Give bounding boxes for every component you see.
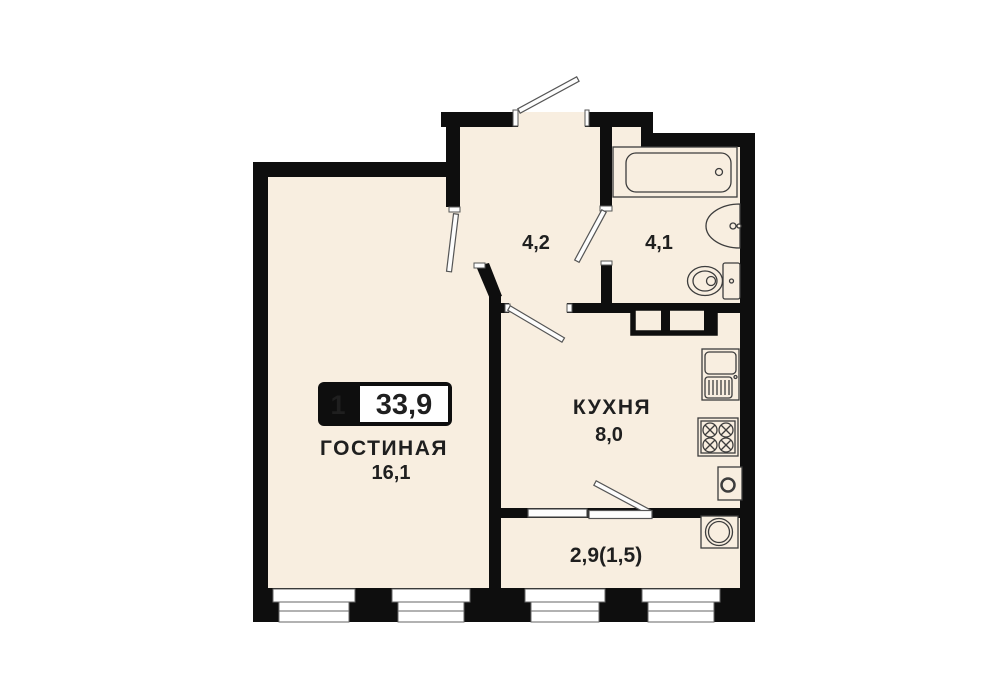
entrance-door-leaf	[518, 77, 579, 113]
kitchen-sink-faucet	[734, 376, 737, 379]
kitchen-name: КУХНЯ	[573, 396, 651, 419]
living-room-name: ГОСТИНАЯ	[320, 437, 448, 460]
bathtub	[613, 147, 737, 197]
window-living-1	[273, 589, 355, 622]
wall-hall-left	[446, 112, 460, 207]
bathtub-drain	[716, 169, 723, 176]
hallway-area: 4,2	[522, 232, 550, 254]
balcony-sliding-panel-right	[589, 511, 652, 519]
vent-shaft-divider-1	[661, 306, 670, 335]
wall-right	[740, 133, 755, 622]
cap-entrance-left-jamb	[513, 110, 518, 126]
cap-hall-left-bottom	[449, 207, 460, 212]
cap-bath-divider-top	[601, 261, 612, 265]
balcony-fixtures	[701, 516, 738, 548]
water-heater	[718, 467, 742, 500]
washing-machine	[701, 516, 738, 548]
window-balcony-2	[642, 589, 720, 622]
apartment-badge: 1 33,9	[318, 382, 452, 426]
toilet-drain	[707, 277, 716, 286]
wall-bath-top	[645, 133, 755, 147]
balcony-area: 2,9(1,5)	[570, 544, 642, 567]
floor-plan: 1 33,9 ГОСТИНАЯ 16,1 4,2 4,1 КУХНЯ 8,0 2…	[0, 0, 1006, 700]
wall-living-kitchen	[489, 295, 501, 588]
toilet-tank-button	[730, 279, 734, 283]
toilet	[688, 263, 741, 299]
vent-shaft-box	[633, 308, 715, 333]
window-living-2	[392, 589, 470, 622]
wall-living-top	[253, 162, 460, 177]
kitchen-sink-bowl	[705, 352, 736, 374]
stove	[698, 418, 738, 456]
window-balcony-1	[525, 589, 605, 622]
wall-hall-bath-upper	[600, 127, 612, 207]
water-heater-dial	[722, 479, 735, 492]
kitchen-area: 8,0	[595, 424, 623, 446]
washing-machine-drum-inner	[709, 522, 730, 543]
balcony-sliding-panel-left	[528, 509, 587, 517]
badge-total-area: 33,9	[376, 389, 432, 421]
wall-left	[253, 162, 268, 622]
living-room-area: 16,1	[372, 462, 411, 484]
cap-entrance-right-jamb	[585, 110, 589, 126]
bathroom-sink-tap	[737, 224, 741, 228]
vent-shaft	[633, 306, 717, 335]
floor-plan-canvas: 1 33,9 ГОСТИНАЯ 16,1 4,2 4,1 КУХНЯ 8,0 2…	[0, 0, 1006, 700]
vent-shaft-divider-2	[704, 306, 717, 335]
badge-rooms-count: 1	[330, 390, 345, 420]
kitchen-sink-unit	[702, 349, 739, 400]
bathroom-sink-faucet	[730, 223, 736, 229]
bathroom-area: 4,1	[645, 232, 673, 254]
cap-kitchen-wall-left	[567, 304, 572, 312]
cap-diagonal-top	[474, 263, 485, 268]
